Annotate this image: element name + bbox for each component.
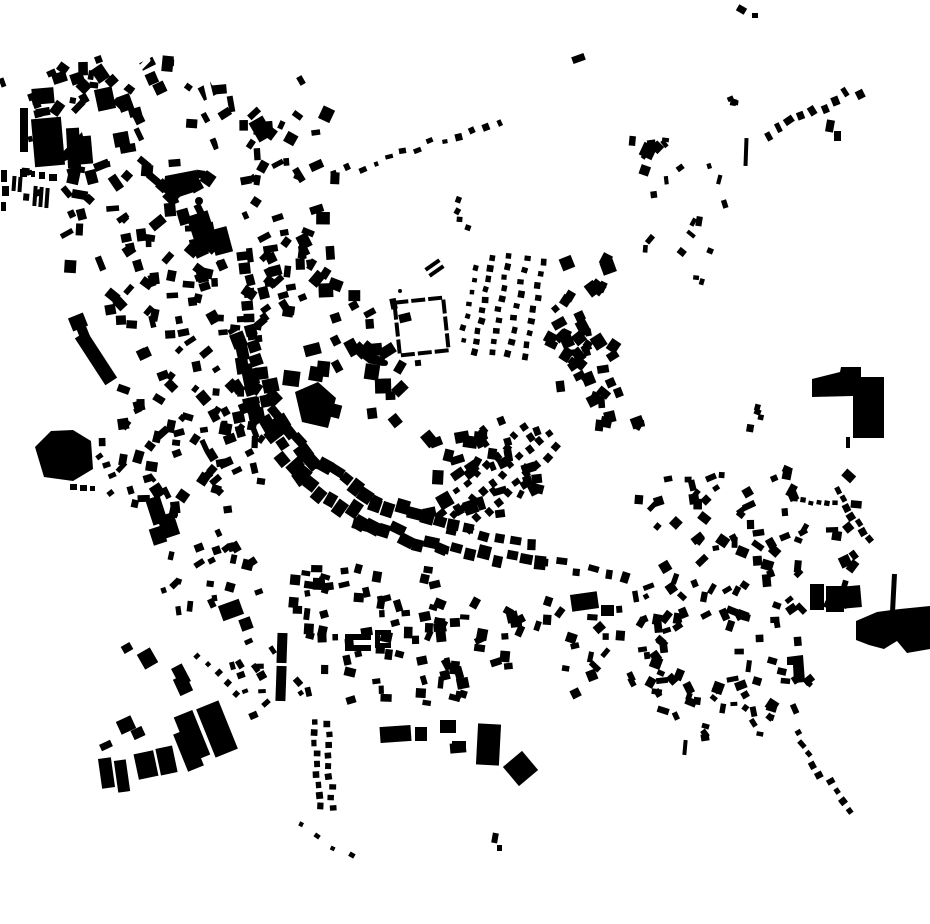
building: [415, 727, 427, 741]
building: [746, 424, 754, 433]
building: [465, 313, 471, 319]
building: [656, 669, 665, 677]
building: [432, 470, 444, 485]
building: [677, 247, 687, 257]
building: [700, 610, 712, 620]
building: [493, 328, 500, 334]
building: [462, 523, 474, 534]
building: [616, 606, 623, 613]
building: [797, 739, 806, 749]
building: [495, 317, 502, 323]
building: [236, 251, 247, 261]
building: [613, 387, 624, 399]
building: [325, 742, 332, 748]
building: [725, 620, 735, 632]
building: [849, 550, 859, 561]
building: [246, 139, 256, 150]
building: [298, 821, 304, 827]
building: [61, 185, 74, 198]
building: [570, 591, 599, 612]
building: [286, 283, 297, 291]
building: [838, 796, 848, 806]
building: [168, 159, 180, 167]
building: [461, 338, 466, 343]
building: [767, 656, 778, 665]
building: [463, 479, 472, 488]
building: [121, 170, 134, 183]
building: [520, 461, 536, 474]
building: [711, 681, 725, 695]
building: [543, 614, 552, 625]
building: [749, 718, 758, 728]
building: [415, 688, 426, 698]
building: [554, 606, 566, 618]
building: [496, 416, 506, 426]
building: [413, 147, 422, 154]
building: [772, 601, 782, 610]
building: [416, 655, 428, 665]
building: [98, 757, 115, 789]
building: [682, 740, 687, 755]
building: [840, 494, 848, 502]
building: [846, 437, 850, 448]
building: [498, 470, 508, 480]
enclosure-outline: [394, 298, 448, 356]
building: [32, 186, 37, 206]
building: [477, 317, 485, 325]
building: [246, 248, 254, 263]
building: [224, 582, 235, 593]
building: [206, 580, 214, 587]
building: [571, 53, 586, 64]
building: [69, 97, 76, 104]
building: [676, 163, 685, 172]
building: [175, 606, 181, 616]
building: [165, 330, 176, 339]
building: [212, 388, 219, 396]
building: [321, 665, 328, 674]
building: [303, 608, 310, 620]
building: [454, 133, 463, 142]
building: [450, 742, 467, 753]
building: [419, 573, 430, 584]
building: [95, 452, 103, 460]
building: [76, 208, 87, 221]
building: [474, 644, 486, 652]
building: [722, 585, 733, 594]
building: [652, 614, 663, 626]
building: [734, 679, 748, 691]
building: [721, 199, 729, 208]
building: [707, 583, 717, 595]
building: [785, 595, 794, 604]
building: [325, 763, 331, 769]
building: [211, 278, 218, 287]
building: [516, 489, 524, 499]
building: [501, 274, 507, 279]
building: [2, 186, 9, 196]
building: [494, 497, 505, 508]
building: [535, 295, 542, 302]
building: [78, 62, 88, 75]
building: [241, 300, 253, 310]
building: [367, 407, 378, 419]
building: [650, 191, 657, 198]
building: [489, 349, 495, 355]
building: [31, 117, 65, 167]
building: [67, 209, 76, 218]
building: [324, 752, 331, 758]
building: [292, 110, 304, 121]
building: [327, 795, 334, 801]
building: [455, 196, 462, 204]
building: [482, 286, 489, 293]
building: [855, 89, 866, 100]
building: [472, 265, 478, 272]
building: [277, 291, 289, 300]
building: [842, 503, 852, 513]
building: [258, 689, 266, 693]
building: [693, 697, 701, 705]
building: [456, 217, 462, 223]
building: [60, 228, 74, 239]
building: [634, 495, 643, 505]
building: [218, 422, 232, 436]
building: [401, 610, 410, 617]
building: [701, 723, 710, 730]
building: [211, 84, 227, 95]
building: [354, 650, 362, 658]
building: [191, 384, 199, 393]
building: [342, 654, 351, 665]
building: [345, 695, 356, 705]
building: [503, 437, 512, 447]
building: [89, 82, 98, 89]
building: [833, 787, 841, 795]
building: [588, 564, 600, 573]
building: [245, 274, 256, 287]
building: [519, 422, 529, 432]
building: [104, 304, 116, 316]
building: [850, 500, 861, 508]
building: [309, 159, 325, 172]
building: [485, 275, 491, 282]
building: [865, 534, 874, 543]
building: [237, 387, 244, 396]
building: [693, 275, 699, 280]
building: [214, 529, 222, 538]
building: [70, 484, 77, 490]
building: [807, 105, 818, 117]
building: [1, 170, 7, 182]
building: [658, 560, 672, 574]
building: [712, 545, 719, 551]
building: [473, 338, 480, 345]
building: [211, 545, 221, 555]
building: [245, 448, 255, 457]
building: [508, 338, 516, 346]
building: [783, 115, 795, 126]
building: [90, 486, 95, 491]
building: [126, 320, 137, 329]
building: [488, 478, 498, 488]
building: [630, 415, 645, 430]
building: [230, 324, 240, 330]
building: [117, 384, 131, 395]
building: [824, 500, 830, 506]
building: [551, 304, 560, 313]
building: [256, 160, 269, 174]
building: [123, 284, 134, 296]
building: [187, 601, 194, 612]
building: [155, 746, 177, 776]
building: [686, 230, 696, 239]
building: [506, 550, 518, 561]
building: [126, 485, 134, 494]
building: [390, 619, 400, 627]
building: [486, 265, 494, 273]
building: [494, 306, 501, 312]
building: [527, 539, 536, 550]
building: [418, 611, 431, 622]
building: [94, 55, 103, 64]
building: [379, 686, 384, 694]
building: [271, 213, 284, 222]
building: [644, 652, 651, 660]
building: [344, 667, 357, 678]
building-dot: [398, 289, 402, 293]
building: [312, 719, 318, 725]
building: [168, 551, 175, 561]
building: [358, 166, 367, 174]
building: [792, 497, 798, 502]
building: [306, 259, 314, 268]
building: [532, 426, 541, 436]
building: [839, 585, 862, 609]
building: [372, 571, 383, 583]
building: [311, 740, 316, 747]
building: [469, 596, 481, 609]
building: [774, 122, 783, 133]
building: [212, 365, 221, 373]
building: [331, 359, 344, 373]
building: [35, 107, 50, 117]
building: [482, 297, 489, 304]
building: [753, 556, 763, 566]
building: [282, 370, 300, 387]
building: [374, 161, 379, 167]
building: [330, 334, 342, 346]
building: [757, 414, 764, 420]
building: [434, 544, 449, 555]
building: [332, 634, 338, 641]
building: [526, 330, 533, 336]
building: [318, 283, 333, 298]
building: [543, 453, 554, 464]
building: [719, 472, 725, 478]
building: [189, 433, 201, 445]
building: [826, 527, 838, 533]
building-block: [163, 170, 200, 198]
building: [825, 119, 835, 132]
building: [601, 605, 614, 616]
building: [453, 207, 461, 215]
building: [379, 610, 385, 617]
building: [597, 364, 610, 373]
building: [643, 245, 648, 253]
building: [699, 278, 705, 285]
building: [261, 698, 271, 707]
building: [572, 568, 580, 576]
building: [638, 646, 647, 652]
building: [254, 588, 263, 596]
building: [207, 557, 216, 565]
building: [231, 466, 242, 475]
building: [765, 698, 780, 713]
building: [496, 119, 503, 127]
building: [538, 271, 544, 277]
building: [131, 499, 139, 508]
building: [230, 554, 238, 564]
building: [182, 281, 194, 289]
building: [814, 771, 824, 780]
building: [114, 759, 130, 792]
building: [491, 833, 499, 844]
building: [412, 636, 419, 644]
building: [605, 569, 613, 579]
building: [268, 645, 277, 654]
building: [841, 469, 856, 484]
building: [363, 307, 376, 318]
building: [644, 676, 656, 689]
building: [605, 377, 617, 389]
building: [781, 508, 788, 516]
building: [706, 163, 712, 169]
building: [826, 777, 836, 786]
building: [752, 529, 764, 537]
building: [276, 633, 287, 663]
building: [810, 584, 824, 610]
building: [175, 345, 184, 354]
building: [311, 729, 318, 736]
building: [750, 706, 758, 717]
building: [326, 731, 333, 737]
building: [521, 267, 528, 274]
building: [393, 359, 407, 374]
building: [525, 444, 535, 454]
building: [325, 773, 333, 780]
building: [522, 353, 529, 361]
building: [398, 312, 412, 323]
building: [254, 148, 261, 160]
building: [476, 723, 501, 765]
building: [379, 725, 411, 743]
building: [663, 475, 672, 482]
building: [271, 159, 284, 169]
building: [293, 606, 303, 614]
map-page: [0, 0, 930, 924]
building: [99, 438, 106, 446]
building: [524, 255, 531, 261]
building: [479, 307, 486, 313]
building: [164, 203, 177, 217]
building: [313, 832, 320, 839]
building: [545, 429, 554, 438]
building: [385, 154, 394, 160]
building: [695, 216, 703, 227]
building: [172, 449, 183, 459]
building: [756, 731, 764, 737]
building: [156, 370, 169, 382]
building: [736, 4, 747, 15]
building: [175, 316, 183, 325]
building: [855, 518, 864, 527]
building: [132, 259, 144, 272]
building: [200, 439, 210, 452]
building: [740, 690, 750, 699]
building: [375, 643, 391, 648]
building: [794, 636, 802, 646]
building: [172, 439, 181, 446]
building: [348, 290, 360, 301]
building: [764, 131, 773, 141]
building: [23, 193, 30, 201]
building: [492, 555, 504, 568]
building: [381, 594, 392, 602]
building: [437, 676, 444, 688]
building: [345, 634, 371, 640]
building: [232, 690, 240, 698]
building: [529, 305, 536, 313]
building: [645, 234, 655, 245]
building: [534, 282, 541, 289]
building: [224, 679, 233, 688]
building: [393, 599, 403, 612]
building: [459, 324, 466, 331]
building: [297, 690, 304, 697]
building: [450, 542, 464, 554]
building: [243, 314, 254, 323]
building: [777, 667, 787, 676]
building: [175, 488, 190, 503]
building: [184, 335, 197, 346]
building: [329, 784, 336, 789]
building: [323, 721, 330, 727]
building: [515, 452, 524, 461]
building: [745, 660, 752, 672]
building: [121, 642, 134, 654]
building: [384, 649, 393, 660]
building: [773, 617, 780, 628]
building: [834, 131, 841, 141]
building: [504, 663, 513, 670]
building: [489, 255, 495, 262]
building: [643, 593, 650, 600]
building: [340, 567, 348, 574]
building: [487, 448, 497, 460]
building: [517, 279, 524, 285]
building: [562, 665, 570, 672]
building: [751, 539, 765, 551]
building: [177, 328, 189, 337]
building: [450, 467, 466, 482]
building: [244, 638, 253, 646]
building: [218, 599, 244, 622]
building: [195, 389, 211, 406]
building: [116, 315, 126, 325]
building: [93, 159, 110, 172]
building: [152, 393, 165, 405]
